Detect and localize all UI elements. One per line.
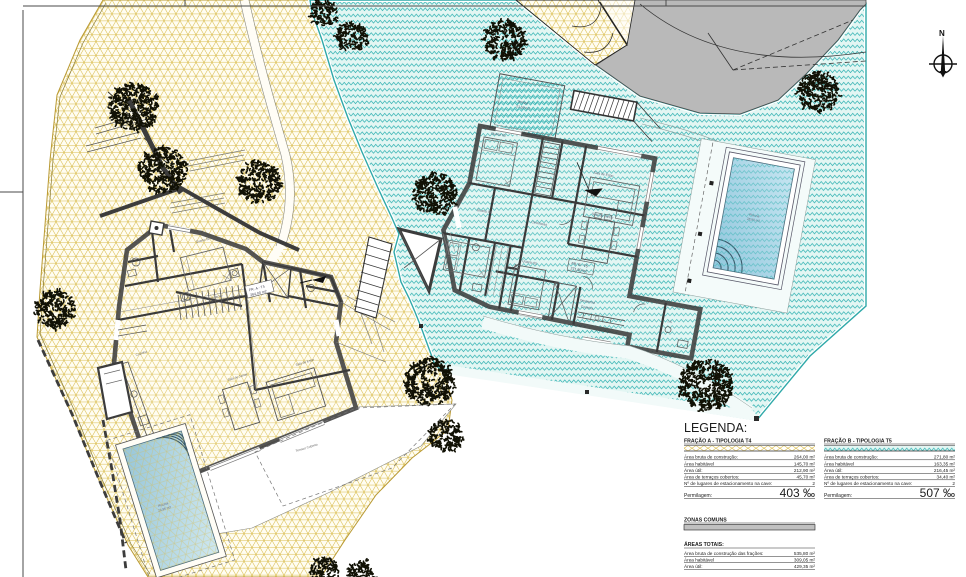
svg-text:FRAÇÃO B - TIPOLOGIA T5: FRAÇÃO B - TIPOLOGIA T5 [824,438,892,445]
svg-text:Nº de lugares de estacionament: Nº de lugares de estacionamento na cave: [684,481,772,486]
svg-text:Área útil:: Área útil: [684,467,703,473]
svg-text:Nº de lugares de estacionament: Nº de lugares de estacionamento na cave: [824,481,912,486]
svg-text:Área de terraços cobertos:: Área de terraços cobertos: [684,473,739,479]
svg-text:145,70 m²: 145,70 m² [794,461,816,466]
svg-text:271,80 m²: 271,80 m² [934,454,956,459]
svg-text:Permilagem:: Permilagem: [824,493,852,499]
svg-text:507 ‰: 507 ‰ [920,486,955,500]
svg-text:ÁREAS TOTAIS:: ÁREAS TOTAIS: [684,541,724,548]
svg-text:FRAÇÃO A - TIPOLOGIA T4: FRAÇÃO A - TIPOLOGIA T4 [684,438,752,445]
svg-text:34,40 m²: 34,40 m² [937,474,956,479]
svg-text:LEGENDA:: LEGENDA: [684,421,747,435]
svg-text:212,90 m²: 212,90 m² [794,468,816,473]
svg-text:Área bruta de construção:: Área bruta de construção: [824,453,878,459]
svg-text:216,45 m²: 216,45 m² [934,468,956,473]
svg-text:264,00 m²: 264,00 m² [794,454,816,459]
svg-text:Área bruta de construção:: Área bruta de construção: [684,453,738,459]
svg-text:429,35 m²: 429,35 m² [794,564,816,569]
svg-text:Área de terraços cobertos:: Área de terraços cobertos: [824,473,879,479]
svg-text:N: N [939,29,945,38]
svg-text:403 ‰: 403 ‰ [780,486,815,500]
svg-text:Permilagem:: Permilagem: [684,493,712,499]
svg-text:309,05 m²: 309,05 m² [794,558,816,563]
svg-text:535,80 m²: 535,80 m² [794,551,816,556]
svg-text:Área útil:: Área útil: [824,467,843,473]
svg-text:45,70 m²: 45,70 m² [797,474,816,479]
svg-text:Área habitável: Área habitável [684,460,714,466]
svg-text:Área útil:: Área útil: [684,563,703,569]
svg-text:Área habitável: Área habitável [824,460,854,466]
svg-text:163,35 m²: 163,35 m² [934,461,956,466]
svg-text:ZONAS COMUNS: ZONAS COMUNS [684,518,727,524]
svg-text:Área habitável: Área habitável [684,557,714,563]
svg-text:Área bruta de construção das f: Área bruta de construção das frações: [684,550,763,556]
